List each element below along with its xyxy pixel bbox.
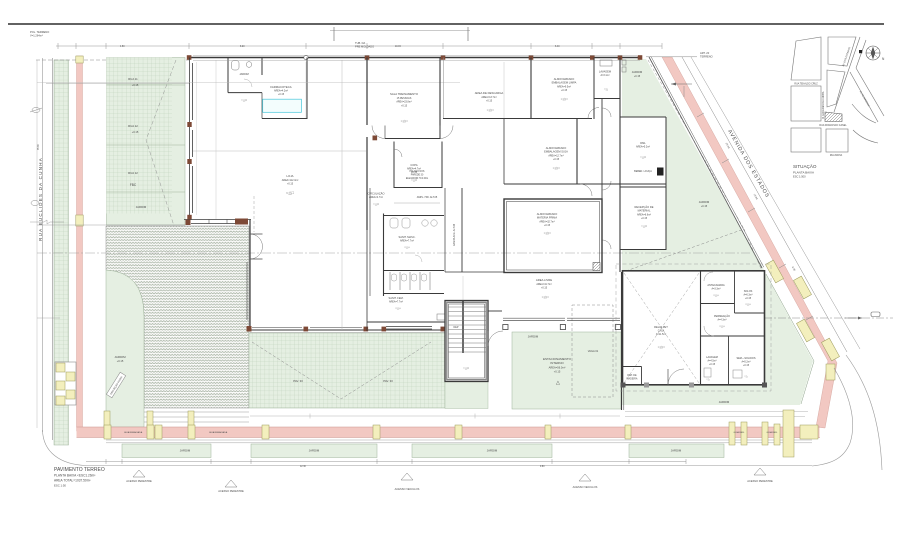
svg-text:AREA=13.7m²: AREA=13.7m² xyxy=(481,96,497,99)
svg-text:PAV. 30: PAV. 30 xyxy=(383,379,393,383)
svg-text:JARDIM: JARDIM xyxy=(180,449,191,453)
svg-text:○△□: ○△□ xyxy=(542,295,549,299)
svg-text:+0.15: +0.15 xyxy=(709,363,716,366)
svg-text:AREA=5.2m²: AREA=5.2m² xyxy=(636,146,650,149)
svg-text:○△□: ○△□ xyxy=(745,302,751,306)
svg-text:+0.15: +0.15 xyxy=(553,158,560,161)
svg-text:AREA TOTAL=1037.50m²: AREA TOTAL=1037.50m² xyxy=(54,479,90,483)
svg-text:ALMOXARIFADO: ALMOXARIFADO xyxy=(554,77,574,81)
svg-text:MADEIRA: MADEIRA xyxy=(627,377,638,380)
svg-text:+0.15: +0.15 xyxy=(541,287,548,290)
svg-text:RUA 11: RUA 11 xyxy=(128,77,138,81)
svg-text:RAMPA ACE. ALT.05: RAMPA ACE. ALT.05 xyxy=(453,223,456,246)
svg-text:35.60: 35.60 xyxy=(38,144,40,150)
svg-text:RUA EUCLIDES DA CUNHA: RUA EUCLIDES DA CUNHA xyxy=(38,157,43,241)
svg-text:○△□: ○△□ xyxy=(286,190,294,195)
svg-text:PERMEAÇÃO: PERMEAÇÃO xyxy=(714,315,730,318)
svg-text:JARDIM: JARDIM xyxy=(239,73,248,76)
svg-text:EMBALAGEM LIMPA: EMBALAGEM LIMPA xyxy=(552,81,577,85)
svg-text:○△□: ○△□ xyxy=(395,306,401,310)
svg-text:PAVIMENTO TERREO: PAVIMENTO TERREO xyxy=(54,467,105,473)
svg-text:PAREDE 30: PAREDE 30 xyxy=(411,173,424,176)
svg-text:○△□: ○△□ xyxy=(561,97,568,101)
svg-text:AREA=23.8m²: AREA=23.8m² xyxy=(396,101,412,104)
svg-text:ACESSO VEICULOS: ACESSO VEICULOS xyxy=(573,485,598,489)
svg-text:SALA TREINAMENTO: SALA TREINAMENTO xyxy=(390,92,419,96)
svg-text:ANTECAMARA: ANTECAMARA xyxy=(707,284,725,287)
svg-text:GUIA REB.: GUIA REB. xyxy=(734,431,745,434)
svg-text:A=3.1m²: A=3.1m² xyxy=(600,74,609,77)
svg-text:15 PESSOAS: 15 PESSOAS xyxy=(397,97,412,100)
svg-text:○△□: ○△□ xyxy=(544,231,551,235)
svg-text:LAVAGEM: LAVAGEM xyxy=(706,356,718,359)
svg-text:BEBED. LOUÇA: BEBED. LOUÇA xyxy=(634,170,652,173)
svg-text:○△□: ○△□ xyxy=(719,324,725,328)
svg-text:EMBALAGEM SUJA: EMBALAGEM SUJA xyxy=(544,150,568,154)
svg-text:ESC 1:50: ESC 1:50 xyxy=(54,484,66,488)
svg-text:AMPL. HID. ALT.05: AMPL. HID. ALT.05 xyxy=(417,196,438,199)
svg-text:COPA: COPA xyxy=(410,163,417,167)
svg-text:AREA=4.7m²: AREA=4.7m² xyxy=(369,196,383,199)
svg-text:JARDIM: JARDIM xyxy=(136,205,147,209)
svg-text:AREA=56.0m²: AREA=56.0m² xyxy=(549,366,566,370)
svg-text:LAVAGEM: LAVAGEM xyxy=(599,70,611,74)
svg-text:PELADO NOS: PELADO NOS xyxy=(410,170,425,173)
svg-text:RUA FRANCISCO CANEL: RUA FRANCISCO CANEL xyxy=(819,124,847,127)
svg-text:12.30: 12.30 xyxy=(300,466,306,468)
svg-text:ESC 1:500: ESC 1:500 xyxy=(793,175,806,179)
svg-text:○△□: ○△□ xyxy=(640,155,646,159)
svg-text:AREA=41.7m²: AREA=41.7m² xyxy=(536,283,552,286)
svg-text:+0.15: +0.15 xyxy=(544,224,551,227)
svg-text:ALMOXARIFADO: ALMOXARIFADO xyxy=(546,146,566,150)
svg-text:ACESSO PEDESTRE: ACESSO PEDESTRE xyxy=(747,479,773,483)
svg-text:DEP: DEP xyxy=(454,326,459,329)
svg-text:+0.15: +0.15 xyxy=(745,297,752,300)
svg-text:JARDIM: JARDIM xyxy=(632,70,643,74)
svg-text:JARDIM: JARDIM xyxy=(309,449,320,453)
svg-text:INTERNO: INTERNO xyxy=(550,361,564,365)
svg-text:RUA TENALDO CRUZ: RUA TENALDO CRUZ xyxy=(794,83,818,86)
svg-text:ELEVADOR H=4.00m: ELEVADOR H=4.00m xyxy=(406,177,428,180)
svg-text:AREA=6.6m²: AREA=6.6m² xyxy=(637,213,651,216)
svg-text:10.15: 10.15 xyxy=(395,46,401,48)
svg-text:GUIA REBAIXADA: GUIA REBAIXADA xyxy=(209,431,228,434)
svg-text:+0.15: +0.15 xyxy=(287,183,294,186)
svg-text:AREA=32.7m²: AREA=32.7m² xyxy=(539,220,555,223)
svg-text:SEM—SOLIDOS: SEM—SOLIDOS xyxy=(736,357,755,360)
svg-text:RUA BAHIA: RUA BAHIA xyxy=(830,154,843,157)
svg-text:○△□: ○△□ xyxy=(463,366,469,370)
svg-text:○△□: ○△□ xyxy=(487,108,494,112)
svg-text:A=4.3m²: A=4.3m² xyxy=(717,319,726,322)
svg-text:JARDIM: JARDIM xyxy=(114,355,126,359)
svg-text:ART. 20: ART. 20 xyxy=(700,51,710,55)
svg-text:+0.15: +0.15 xyxy=(132,130,139,134)
svg-text:+0.15: +0.15 xyxy=(641,217,648,220)
svg-text:VAGA 01: VAGA 01 xyxy=(588,349,599,353)
svg-text:+0.15: +0.15 xyxy=(117,359,124,363)
svg-text:8.20: 8.20 xyxy=(240,46,245,48)
svg-text:+0.15: +0.15 xyxy=(486,100,493,103)
svg-text:SANIT. FEM.: SANIT. FEM. xyxy=(389,296,404,300)
svg-text:DML: DML xyxy=(640,141,646,145)
svg-text:+0.15: +0.15 xyxy=(401,104,408,107)
svg-text:GUIA REB.: GUIA REB. xyxy=(767,431,778,434)
svg-text:A=11.5m²: A=11.5m² xyxy=(656,333,666,336)
svg-text:FARMACOTECA: FARMACOTECA xyxy=(270,85,291,89)
svg-text:TERRENO: TERRENO xyxy=(700,55,713,59)
svg-text:SANIT. MASC.: SANIT. MASC. xyxy=(398,235,415,239)
svg-text:JARDIM: JARDIM xyxy=(719,400,730,404)
svg-text:+0.15: +0.15 xyxy=(278,93,285,96)
svg-text:6.40: 6.40 xyxy=(555,46,560,48)
svg-text:+0.15: +0.15 xyxy=(561,89,568,92)
svg-text:LOJA: LOJA xyxy=(287,174,294,178)
svg-text:AREA LIVRE: AREA LIVRE xyxy=(536,278,552,282)
svg-text:A=3.3m²: A=3.3m² xyxy=(711,288,720,291)
svg-text:FBC: FBC xyxy=(130,183,137,187)
svg-text:POL. TERRENO: POL. TERRENO xyxy=(30,30,49,34)
svg-text:○△: ○△ xyxy=(604,87,609,91)
svg-text:RUA 12: RUA 12 xyxy=(128,171,138,175)
svg-text:○△□: ○△□ xyxy=(553,166,560,170)
svg-text:ACESSO PEDESTRE: ACESSO PEDESTRE xyxy=(126,479,152,483)
svg-text:○△□: ○△□ xyxy=(713,293,719,297)
svg-text:AREA=7.7m²: AREA=7.7m² xyxy=(400,240,414,243)
svg-text:RUA 12: RUA 12 xyxy=(128,124,138,128)
svg-text:MATERIA PRIMA: MATERIA PRIMA xyxy=(537,216,557,220)
svg-text:ACESSO PEDESTRE: ACESSO PEDESTRE xyxy=(218,489,244,493)
svg-text:9.80: 9.80 xyxy=(540,466,545,468)
svg-text:R. EUCLIDES DA CUNHA: R. EUCLIDES DA CUNHA xyxy=(822,91,825,118)
svg-text:SOLOS: SOLOS xyxy=(744,290,753,293)
svg-text:PLANTA BAIXA <ESC1.26m²: PLANTA BAIXA <ESC1.26m² xyxy=(54,474,95,478)
svg-text:+0.15: +0.15 xyxy=(554,370,561,374)
svg-text:+0.15: +0.15 xyxy=(634,75,641,78)
svg-text:JARDIM: JARDIM xyxy=(671,449,682,453)
svg-text:AREA DE DESCARGA: AREA DE DESCARGA xyxy=(475,91,504,95)
svg-text:JARDIM: JARDIM xyxy=(487,449,498,453)
svg-text:AREA=9.5m²: AREA=9.5m² xyxy=(557,85,571,88)
svg-text:ALMOXARIFADO: ALMOXARIFADO xyxy=(537,212,557,216)
svg-text:○△□: ○△□ xyxy=(241,98,247,102)
svg-text:JARDIM: JARDIM xyxy=(528,335,539,339)
svg-text:△: △ xyxy=(556,380,560,386)
svg-text:PRE MOLDADO: PRE MOLDADO xyxy=(355,45,374,49)
svg-text:TUB. DA: TUB. DA xyxy=(355,41,366,45)
svg-text:○△□: ○△□ xyxy=(373,202,379,206)
svg-text:JARDIM: JARDIM xyxy=(699,200,710,204)
svg-text:V=1.264m²: V=1.264m² xyxy=(30,34,43,38)
svg-text:ACESSO VEICULOS: ACESSO VEICULOS xyxy=(395,487,420,491)
svg-text:○△□: ○△□ xyxy=(658,345,665,349)
svg-text:○△□: ○△□ xyxy=(401,119,408,123)
svg-text:GUIA REBAIXADA: GUIA REBAIXADA xyxy=(124,431,143,434)
svg-text:AREA=7.7m²: AREA=7.7m² xyxy=(389,300,403,303)
svg-text:4.50: 4.50 xyxy=(120,46,125,48)
svg-text:MATERIAL: MATERIAL xyxy=(638,209,651,213)
svg-text:+0.15: +0.15 xyxy=(743,364,750,367)
svg-text:○△□: ○△□ xyxy=(641,224,647,228)
svg-text:PLANTA BAIXA: PLANTA BAIXA xyxy=(793,171,814,175)
svg-text:PAV. 30: PAV. 30 xyxy=(293,379,303,383)
svg-text:○△□: ○△□ xyxy=(404,245,410,249)
svg-text:AREA=12.7m²: AREA=12.7m² xyxy=(548,154,564,157)
svg-text:+0.15: +0.15 xyxy=(701,205,708,208)
svg-text:SITUAÇÃO: SITUAÇÃO xyxy=(793,163,817,169)
